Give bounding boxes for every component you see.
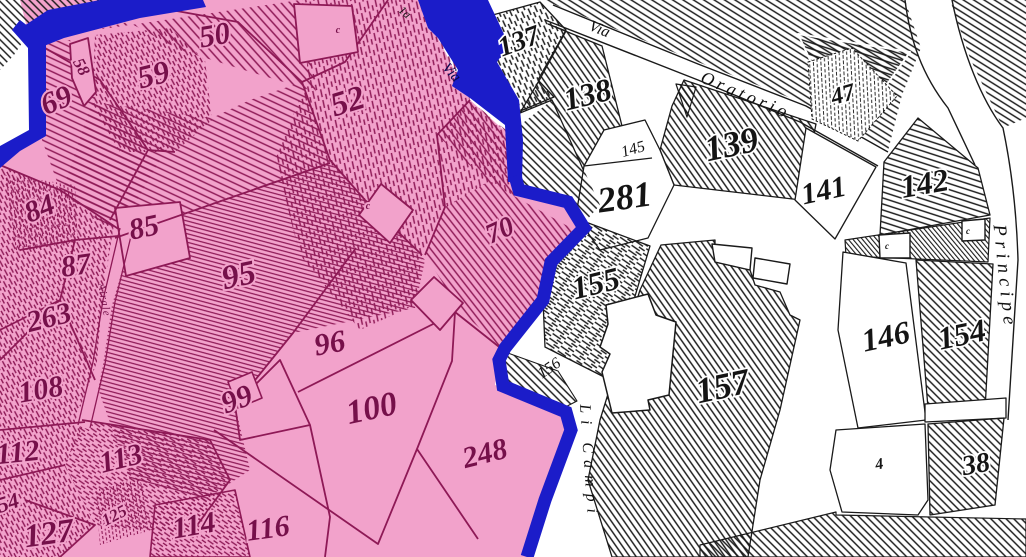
svg-text:281: 281 xyxy=(594,173,654,220)
svg-text:38: 38 xyxy=(958,447,992,483)
svg-text:c: c xyxy=(366,201,371,212)
svg-text:116: 116 xyxy=(244,509,292,548)
svg-text:c: c xyxy=(966,226,970,236)
svg-text:87: 87 xyxy=(59,247,94,284)
svg-text:127: 127 xyxy=(22,513,78,556)
svg-text:c: c xyxy=(885,241,889,251)
svg-text:112: 112 xyxy=(0,434,41,471)
svg-text:c: c xyxy=(336,25,341,36)
svg-text:96: 96 xyxy=(311,323,348,363)
svg-text:50: 50 xyxy=(196,15,233,55)
